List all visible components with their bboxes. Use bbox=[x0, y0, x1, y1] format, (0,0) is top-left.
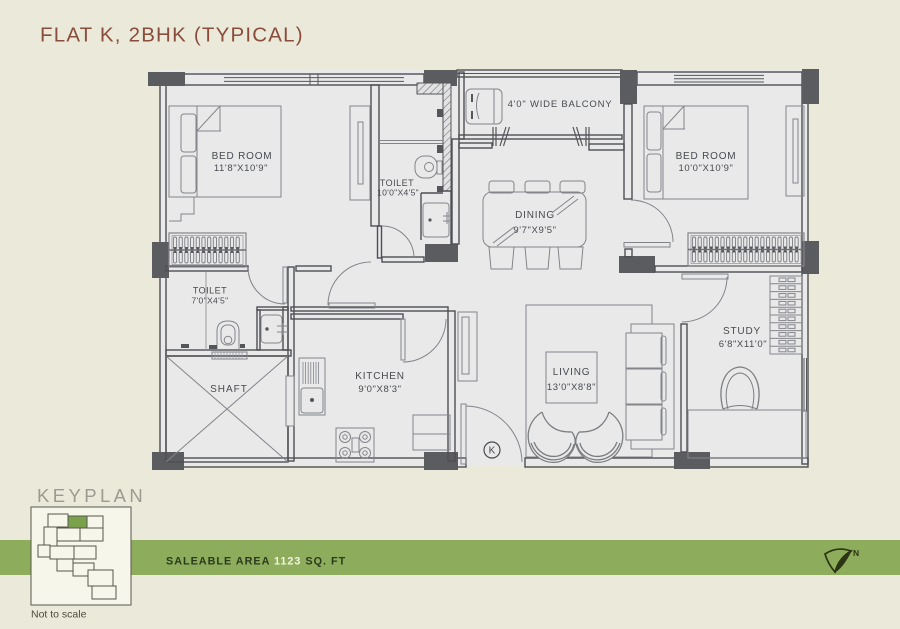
svg-text:SHAFT: SHAFT bbox=[210, 384, 248, 395]
svg-text:Not to scale: Not to scale bbox=[31, 609, 87, 621]
svg-text:DINING: DINING bbox=[515, 210, 555, 221]
svg-text:N: N bbox=[853, 548, 859, 558]
svg-text:KEYPLAN: KEYPLAN bbox=[37, 485, 146, 506]
svg-text:KITCHEN: KITCHEN bbox=[355, 371, 405, 382]
svg-text:SALEABLE AREA 1123 SQ. FT: SALEABLE AREA 1123 SQ. FT bbox=[166, 556, 346, 568]
svg-text:FLAT K, 2BHK (TYPICAL): FLAT K, 2BHK (TYPICAL) bbox=[40, 24, 304, 47]
svg-text:11'8"X10'9": 11'8"X10'9" bbox=[214, 163, 268, 174]
svg-text:10'0"X10'9": 10'0"X10'9" bbox=[678, 163, 733, 174]
svg-text:13'0"X8'8": 13'0"X8'8" bbox=[547, 382, 596, 393]
svg-text:10'0"X4'5": 10'0"X4'5" bbox=[377, 188, 419, 198]
svg-text:TOILET: TOILET bbox=[380, 178, 414, 188]
svg-text:LIVING: LIVING bbox=[553, 367, 591, 378]
svg-text:4'0" WIDE BALCONY: 4'0" WIDE BALCONY bbox=[508, 99, 613, 110]
svg-text:9'7"X9'5": 9'7"X9'5" bbox=[513, 225, 556, 236]
svg-text:7'0"X4'5": 7'0"X4'5" bbox=[192, 296, 229, 306]
svg-text:9'0"X8'3": 9'0"X8'3" bbox=[358, 384, 401, 395]
svg-text:K: K bbox=[489, 446, 496, 457]
svg-text:STUDY: STUDY bbox=[723, 326, 761, 337]
svg-text:BED ROOM: BED ROOM bbox=[676, 151, 737, 162]
svg-text:TOILET: TOILET bbox=[193, 286, 227, 296]
svg-text:BED ROOM: BED ROOM bbox=[212, 151, 273, 162]
svg-text:6'8"X11'0": 6'8"X11'0" bbox=[719, 339, 767, 350]
